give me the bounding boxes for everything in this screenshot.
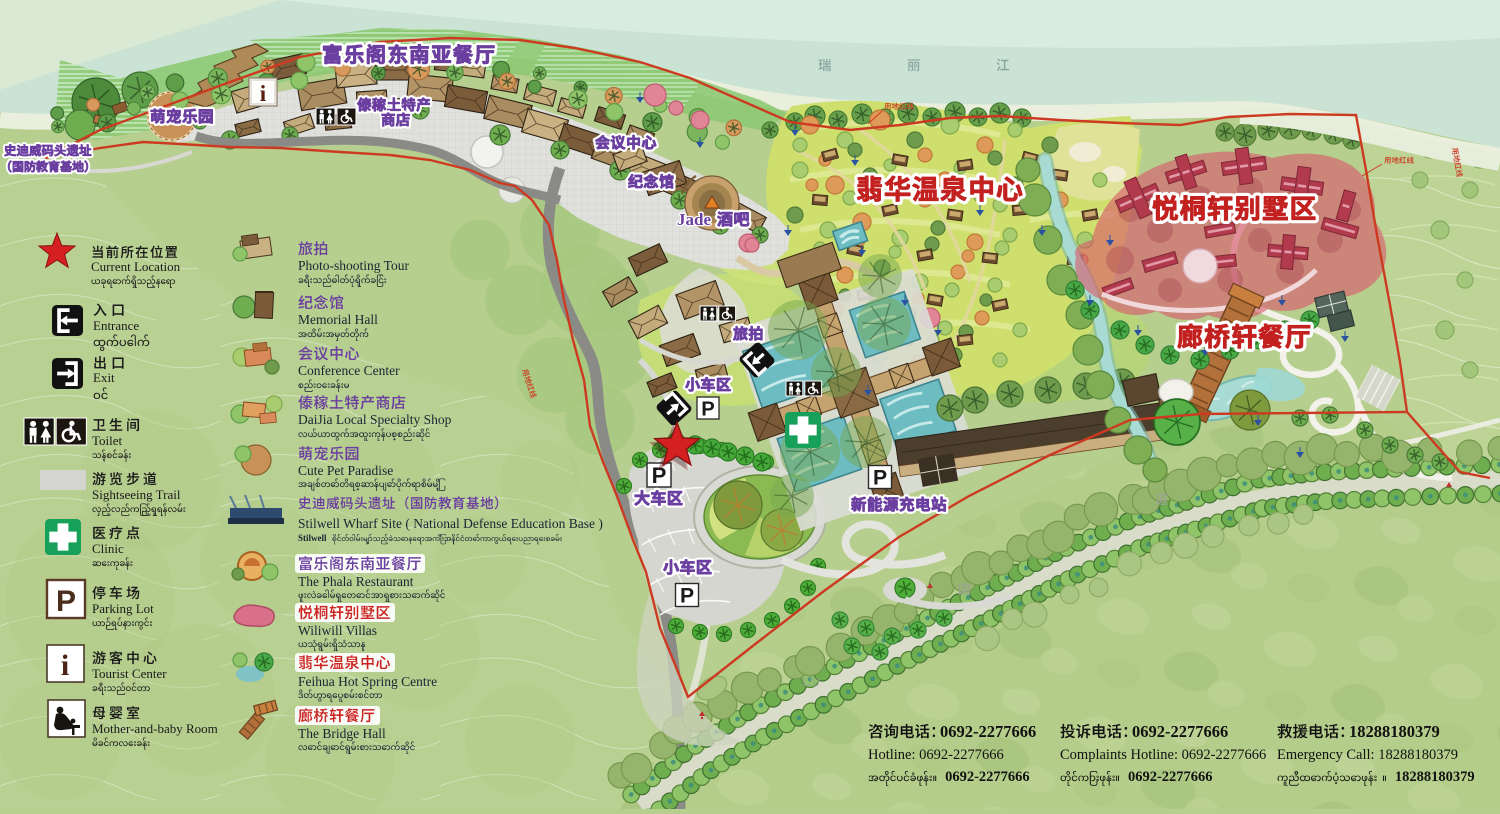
svg-text:Toilet: Toilet: [92, 433, 123, 448]
svg-text:Emergency Call: 18288180379: Emergency Call: 18288180379: [1277, 747, 1458, 763]
svg-text:P: P: [873, 467, 887, 490]
svg-text:Parking Lot: Parking Lot: [92, 601, 154, 616]
svg-text:i: i: [61, 649, 69, 682]
svg-text:P: P: [56, 585, 76, 618]
svg-text:Stilwell Wharf Site ( National: Stilwell Wharf Site ( National Defense E…: [298, 516, 603, 531]
svg-text:Conference Center: Conference Center: [298, 363, 400, 378]
svg-text:18288180379: 18288180379: [1395, 769, 1475, 785]
svg-text:Jade: Jade: [677, 210, 711, 229]
svg-text:The Phala Restaurant: The Phala Restaurant: [298, 574, 414, 589]
svg-text:P: P: [701, 398, 715, 420]
svg-text:The Bridge Hall: The Bridge Hall: [298, 726, 386, 741]
svg-text:Photo-shooting Tour: Photo-shooting Tour: [298, 258, 409, 273]
svg-text:Sightseeing Trail: Sightseeing Trail: [92, 487, 181, 502]
svg-text:Entrance: Entrance: [93, 318, 139, 333]
svg-text:0692-2277666: 0692-2277666: [945, 769, 1030, 785]
svg-text:Wiliwill Villas: Wiliwill Villas: [298, 623, 377, 638]
svg-text:18288180379: 18288180379: [1349, 722, 1440, 741]
svg-text:i: i: [260, 81, 267, 106]
svg-text:P: P: [680, 585, 694, 608]
svg-text:Cute Pet Paradise: Cute Pet Paradise: [298, 463, 393, 478]
svg-text:Feihua Hot Spring Centre: Feihua Hot Spring Centre: [298, 674, 437, 689]
svg-text:Complaints Hotline: 0692-22776: Complaints Hotline: 0692-2277666: [1060, 747, 1266, 763]
svg-text:320: 320: [800, 674, 820, 689]
svg-text:0692-2277666: 0692-2277666: [1132, 722, 1228, 741]
svg-text:Memorial Hall: Memorial Hall: [298, 312, 378, 327]
svg-text:Mother-and-baby Room: Mother-and-baby Room: [92, 721, 218, 736]
svg-text:0692-2277666: 0692-2277666: [1128, 769, 1213, 785]
svg-text:Stilwell: Stilwell: [298, 533, 327, 543]
svg-text:Current Location: Current Location: [91, 259, 181, 274]
svg-text:0692-2277666: 0692-2277666: [940, 722, 1036, 741]
svg-text:P: P: [652, 463, 667, 488]
svg-text:Tourist Center: Tourist Center: [92, 666, 167, 681]
svg-text:Hotline: 0692-2277666: Hotline: 0692-2277666: [868, 747, 1004, 763]
svg-text:Exit: Exit: [93, 370, 115, 385]
svg-text:Clinic: Clinic: [92, 541, 124, 556]
svg-text:DaiJia Local Specialty Shop: DaiJia Local Specialty Shop: [298, 412, 452, 427]
